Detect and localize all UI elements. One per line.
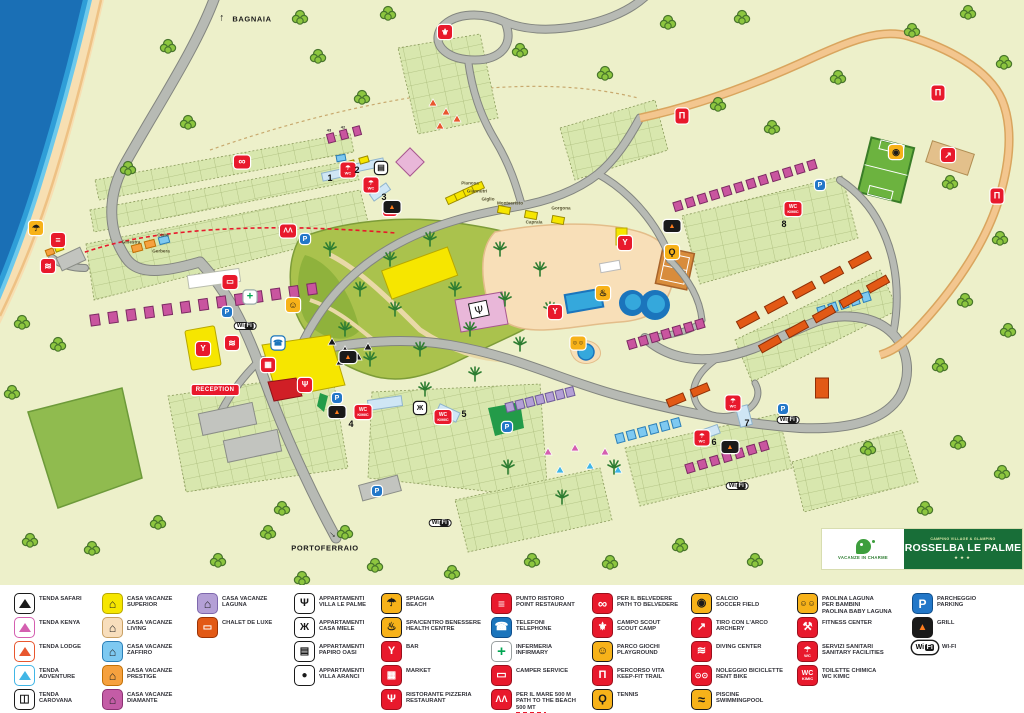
legend-label: PARCHEGGIOPARKING — [937, 593, 976, 609]
legend-item-wifi: WiFiWI-FI — [912, 641, 1012, 665]
legend-column-2: ⌂CASA VACANZESUPERIOR⌂CASA VACANZELIVING… — [102, 593, 197, 713]
legend-label: BAR — [406, 641, 419, 650]
brand-name: VACANZE IN CHARME — [838, 555, 888, 560]
calcio-icon: ◉ — [691, 593, 712, 614]
legend-label: CALCIOSOCCER FIELD — [716, 593, 759, 609]
legend-label: PISCINESWIMMINGPOOL — [716, 689, 763, 705]
legend-label: TENNIS — [617, 689, 638, 698]
percorso-vita-icon: Π — [592, 665, 613, 686]
legend-item-ristorante-pizzeria: ΨRISTORANTE PIZZERIARESTAURANT — [381, 689, 491, 713]
legend-label: NOLEGGIO BICICLETTERENT BIKE — [716, 665, 783, 681]
legend-label: SERVIZI SANITARISANITARY FACILITIES — [822, 641, 884, 657]
camping-resort-map-page: Ψ ∞⚜ΠΠΠ◉↗Ϙ♨YYYY☺☺☺▦Ψ≡☂≋≋☎+▭ΛΛ▤Ж☂WC☂WC☂WC… — [0, 0, 1024, 713]
grill-icon: ▲ — [329, 406, 346, 418]
legend-label: CASA VACANZEDIAMANTE — [127, 689, 172, 705]
tenda-carovana-icon: ◫ — [14, 689, 35, 710]
resort-logo: VACANZE IN CHARME CAMPING VILLAGE & GLAM… — [822, 529, 1022, 569]
per-il-belvedere-icon: ∞ — [592, 593, 613, 614]
legend-item-grill: ▲GRILL — [912, 617, 1012, 641]
legend-label: TENDA KENYA — [39, 617, 80, 626]
legend-item-casa-vacanze-diamante: ⌂CASA VACANZEDIAMANTE — [102, 689, 197, 713]
casa-vacanze-diamante-icon: ⌂ — [102, 689, 123, 710]
legend-item-per-il-mare: ΛΛPER IL MARE 500 MPATH TO THE BEACH500 … — [491, 689, 592, 713]
brand-swirl-icon — [856, 539, 871, 554]
legend-item-per-il-belvedere: ∞PER IL BELVEDEREPATH TO BELVEDERE — [592, 593, 691, 617]
restaurant-icon: Ψ — [298, 378, 312, 392]
beach-path-icon: ΛΛ — [280, 225, 296, 238]
resort-stars: ★★★ — [954, 555, 972, 561]
camper-icon: ▭ — [223, 275, 238, 289]
legend-item-spa-centro-benessere: ♨SPA/CENTRO BENESSEREHEALTH CENTRE — [381, 617, 491, 641]
punto-ristoro-icon: ≡ — [491, 593, 512, 614]
legend-item-appartamenti-villa-aranci: ●APPARTAMENTIVILLA ARANCI — [294, 665, 381, 689]
bar-icon: Y — [548, 305, 562, 319]
miele-icon: Ж — [414, 402, 426, 414]
casa-vacanze-laguna-icon: ⌂ — [197, 593, 218, 614]
legend-label: TENDAADVENTURE — [39, 665, 75, 681]
casa-vacanze-living-icon: ⌂ — [102, 617, 123, 638]
legend-label: FITNESS CENTER — [822, 617, 872, 626]
parking-icon: P — [778, 404, 788, 414]
parking-icon: P — [300, 234, 310, 244]
percorso-icon: Π — [991, 189, 1004, 204]
legend-label: APPARTAMENTIVILLA ARANCI — [319, 665, 364, 681]
wifi-icon: WiFi — [234, 322, 257, 330]
wifi-icon: WiFi — [726, 482, 749, 490]
playground-icon: ☺ — [286, 298, 300, 312]
legend-label: TENDA SAFARI — [39, 593, 82, 602]
legend-column-3: ⌂CASA VACANZELAGUNA▭CHALET DE LUXE — [197, 593, 294, 713]
parco-giochi-icon: ☺ — [592, 641, 613, 662]
appartamenti-villa-le-palme-icon: Ψ — [294, 593, 315, 614]
per-il-mare-icon: ΛΛ — [491, 689, 512, 710]
campo-scout-icon: ⚜ — [592, 617, 613, 638]
parking-icon: P — [372, 486, 382, 496]
legend-item-infermeria: +INFERMERIAINFIRMARY — [491, 641, 592, 665]
parking-icon: P — [815, 180, 825, 190]
legend-column-7: ∞PER IL BELVEDEREPATH TO BELVEDERE⚜CAMPO… — [592, 593, 691, 713]
legend-label: CHALET DE LUXE — [222, 617, 272, 626]
wc-icon: ☂WC — [341, 163, 356, 178]
tiro-con-larco-icon: ↗ — [691, 617, 712, 638]
grill-icon: ▲ — [912, 617, 933, 638]
legend-label: CASA VACANZELIVING — [127, 617, 172, 633]
legend-label: CASA VACANZESUPERIOR — [127, 593, 172, 609]
bar-icon: Y — [618, 236, 632, 250]
legend-item-percorso-vita: ΠPERCORSO VITAKEEP-FIT TRAIL — [592, 665, 691, 689]
legend-column-4: ΨAPPARTAMENTIVILLA LE PALMEЖAPPARTAMENTI… — [294, 593, 381, 713]
casa-vacanze-zaffiro-icon: ⌂ — [102, 641, 123, 662]
wifi-icon: WiFi — [912, 641, 938, 654]
legend-column-6: ≡PUNTO RISTOROPOINT RESTAURANT☎TELEFONIT… — [491, 593, 592, 713]
casa-vacanze-prestige-icon: ⌂ — [102, 665, 123, 686]
servizi-sanitari-icon: ☂WC — [797, 641, 818, 662]
kimic-icon: WCKIMIC — [355, 405, 372, 419]
market-icon: ▦ — [381, 665, 402, 686]
legend-label: CAMPER SERVICE — [516, 665, 568, 674]
parking-icon: P — [222, 307, 232, 317]
resort-name: ROSSELBA LE PALME — [905, 542, 1022, 554]
spa-centro-benessere-icon: ♨ — [381, 617, 402, 638]
legend-item-casa-vacanze-prestige: ⌂CASA VACANZEPRESTIGE — [102, 665, 197, 689]
grill-icon: ▲ — [664, 220, 681, 232]
tenda-safari-icon — [14, 593, 35, 614]
legend-item-tenda-lodge: TENDA LODGE — [14, 641, 102, 665]
toilette-chimica-icon: WCKIMIC — [797, 665, 818, 686]
beach-icon: ☂ — [29, 221, 43, 235]
terrain-illustration: Ψ — [0, 0, 1024, 585]
scout-icon: ⚜ — [438, 25, 452, 39]
kimic-icon: WCKIMIC — [785, 202, 802, 216]
legend-item-diving-center: ≋DIVING CENTER — [691, 641, 797, 665]
legend-label: RISTORANTE PIZZERIARESTAURANT — [406, 689, 472, 705]
legend-label: TOILETTE CHIMICAWC KIMIC — [822, 665, 876, 681]
legend-label: MARKET — [406, 665, 431, 674]
telefono-icon: ☎ — [272, 337, 285, 350]
legend-label: SPIAGGIABEACH — [406, 593, 434, 609]
camper-service-icon: ▭ — [491, 665, 512, 686]
legend-label: CASA VACANZELAGUNA — [222, 593, 267, 609]
infermeria-icon: + — [244, 291, 257, 304]
chalet-de-luxe-icon: ▭ — [197, 617, 218, 638]
legend-item-casa-vacanze-living: ⌂CASA VACANZELIVING — [102, 617, 197, 641]
legend-item-spiaggia: ☂SPIAGGIABEACH — [381, 593, 491, 617]
legend-item-punto-ristoro: ≡PUNTO RISTOROPOINT RESTAURANT — [491, 593, 592, 617]
legend-label: PUNTO RISTOROPOINT RESTAURANT — [516, 593, 575, 609]
legend-item-market: ▦MARKET — [381, 665, 491, 689]
casa-vacanze-superior-icon: ⌂ — [102, 593, 123, 614]
legend-item-chalet-de-luxe: ▭CHALET DE LUXE — [197, 617, 294, 641]
wc-icon: ☂WC — [364, 178, 379, 193]
bar-icon: Y — [381, 641, 402, 662]
legend-label: PER IL BELVEDEREPATH TO BELVEDERE — [617, 593, 678, 609]
punto-ristoro-icon: ≡ — [51, 233, 65, 247]
legend-label: DIVING CENTER — [716, 641, 761, 650]
legend-item-piscine: ≈PISCINESWIMMINGPOOL — [691, 689, 797, 713]
legend-label: INFERMERIAINFIRMARY — [516, 641, 552, 657]
legend-label: TENDA LODGE — [39, 641, 81, 650]
legend: TENDA SAFARITENDA KENYATENDA LODGETENDAA… — [0, 585, 1024, 713]
legend-label: TELEFONITELEPHONE — [516, 617, 551, 633]
legend-item-tenda-adventure: TENDAADVENTURE — [14, 665, 102, 689]
spiaggia-icon: ☂ — [381, 593, 402, 614]
legend-label: APPARTAMENTIPAPIRO OASI — [319, 641, 364, 657]
paolina-laguna-icon: ☺☺ — [797, 593, 818, 614]
wifi-icon: WiFi — [429, 519, 452, 527]
legend-item-parco-giochi: ☺PARCO GIOCHIPLAYGROUND — [592, 641, 691, 665]
kimic-icon: WCKIMIC — [435, 410, 452, 424]
appartamenti-papiro-oasi-icon: ▤ — [294, 641, 315, 662]
calcio-icon: ◉ — [889, 145, 903, 159]
legend-item-bar: YBAR — [381, 641, 491, 665]
legend-item-casa-vacanze-superior: ⌂CASA VACANZESUPERIOR — [102, 593, 197, 617]
noleggio-biciclette-icon: ⊙⊙ — [691, 665, 712, 686]
legend-label: PARCO GIOCHIPLAYGROUND — [617, 641, 660, 657]
appartamenti-casa-miele-icon: Ж — [294, 617, 315, 638]
telefoni-icon: ☎ — [491, 617, 512, 638]
legend-label: CASA VACANZEZAFFIRO — [127, 641, 172, 657]
legend-label: GRILL — [937, 617, 954, 626]
paolina-icon: ☺☺ — [571, 337, 586, 350]
legend-label: CASA VACANZEPRESTIGE — [127, 665, 172, 681]
parcheggio-icon: P — [912, 593, 933, 614]
legend-label: APPARTAMENTIVILLA LE PALME — [319, 593, 366, 609]
legend-item-parcheggio: PPARCHEGGIOPARKING — [912, 593, 1012, 617]
diving-center-icon: ≋ — [691, 641, 712, 662]
legend-label: PER IL MARE 500 MPATH TO THE BEACH500 MT — [516, 689, 576, 713]
legend-item-fitness-center: ⚒FITNESS CENTER — [797, 617, 912, 641]
legend-label: TENDACAROVANA — [39, 689, 72, 705]
legend-label: TIRO CON L'ARCOARCHERY — [716, 617, 768, 633]
infermeria-icon: + — [491, 641, 512, 662]
legend-column-8: ◉CALCIOSOCCER FIELD↗TIRO CON L'ARCOARCHE… — [691, 593, 797, 713]
grill-icon: ▲ — [340, 351, 357, 363]
legend-item-camper-service: ▭CAMPER SERVICE — [491, 665, 592, 689]
diving-icon: ≋ — [41, 259, 55, 273]
legend-item-appartamenti-papiro-oasi: ▤APPARTAMENTIPAPIRO OASI — [294, 641, 381, 665]
legend-column-9: ☺☺PAOLINA LAGUNAPER BAMBINIPAOLINA BABY … — [797, 593, 912, 713]
tenda-kenya-icon — [14, 617, 35, 638]
legend-label: APPARTAMENTICASA MIELE — [319, 617, 364, 633]
legend-item-tenda-kenya: TENDA KENYA — [14, 617, 102, 641]
legend-item-toilette-chimica: WCKIMICTOILETTE CHIMICAWC KIMIC — [797, 665, 912, 689]
legend-column-10: PPARCHEGGIOPARKING▲GRILLWiFiWI-FI — [912, 593, 1012, 713]
legend-column-5: ☂SPIAGGIABEACH♨SPA/CENTRO BENESSEREHEALT… — [381, 593, 491, 713]
belvedere-icon: ∞ — [234, 156, 250, 169]
legend-item-servizi-sanitari: ☂WCSERVIZI SANITARISANITARY FACILITIES — [797, 641, 912, 665]
appartamenti-villa-aranci-icon: ● — [294, 665, 315, 686]
legend-item-tenda-safari: TENDA SAFARI — [14, 593, 102, 617]
legend-item-tenda-carovana: ◫TENDACAROVANA — [14, 689, 102, 713]
map-area: Ψ ∞⚜ΠΠΠ◉↗Ϙ♨YYYY☺☺☺▦Ψ≡☂≋≋☎+▭ΛΛ▤Ж☂WC☂WC☂WC… — [0, 0, 1024, 585]
wc-icon: ☂WC — [726, 396, 741, 411]
grill-icon: ▲ — [384, 201, 401, 213]
wc-icon: ☂WC — [695, 431, 710, 446]
ristorante-pizzeria-icon: Ψ — [381, 689, 402, 710]
resort-tagline: CAMPING VILLAGE & GLAMPING — [930, 537, 995, 541]
legend-item-paolina-laguna: ☺☺PAOLINA LAGUNAPER BAMBINIPAOLINA BABY … — [797, 593, 912, 617]
legend-item-campo-scout: ⚜CAMPO SCOUTSCOUT CAMP — [592, 617, 691, 641]
diving-icon: ≋ — [225, 336, 239, 350]
archery-icon: ↗ — [941, 148, 955, 162]
legend-item-appartamenti-casa-miele: ЖAPPARTAMENTICASA MIELE — [294, 617, 381, 641]
market-icon: ▦ — [261, 358, 275, 372]
legend-item-tiro-con-larco: ↗TIRO CON L'ARCOARCHERY — [691, 617, 797, 641]
parking-icon: P — [502, 422, 512, 432]
papiro-icon: ▤ — [375, 162, 387, 174]
percorso-icon: Π — [932, 86, 945, 101]
logo-resort-panel: CAMPING VILLAGE & GLAMPING ROSSELBA LE P… — [904, 529, 1022, 569]
grill-icon: ▲ — [722, 441, 739, 453]
legend-label: CAMPO SCOUTSCOUT CAMP — [617, 617, 660, 633]
logo-brand-panel: VACANZE IN CHARME — [822, 529, 904, 569]
legend-column-1: TENDA SAFARITENDA KENYATENDA LODGETENDAA… — [14, 593, 102, 713]
legend-item-casa-vacanze-zaffiro: ⌂CASA VACANZEZAFFIRO — [102, 641, 197, 665]
percorso-icon: Π — [676, 109, 689, 124]
tenda-lodge-icon — [14, 641, 35, 662]
tennis-icon: Ϙ — [592, 689, 613, 710]
tennis-icon: Ϙ — [665, 245, 679, 259]
legend-item-telefoni: ☎TELEFONITELEPHONE — [491, 617, 592, 641]
bar-icon: Y — [196, 342, 210, 356]
legend-item-noleggio-biciclette: ⊙⊙NOLEGGIO BICICLETTERENT BIKE — [691, 665, 797, 689]
parking-icon: P — [332, 393, 342, 403]
tenda-adventure-icon — [14, 665, 35, 686]
spa-icon: ♨ — [596, 286, 610, 300]
piscine-icon: ≈ — [691, 689, 712, 710]
wifi-icon: WiFi — [777, 416, 800, 424]
legend-label: PERCORSO VITAKEEP-FIT TRAIL — [617, 665, 665, 681]
legend-item-calcio: ◉CALCIOSOCCER FIELD — [691, 593, 797, 617]
fitness-center-icon: ⚒ — [797, 617, 818, 638]
reception-label: RECEPTION — [192, 385, 239, 395]
legend-label: PAOLINA LAGUNAPER BAMBINIPAOLINA BABY LA… — [822, 593, 892, 615]
legend-item-casa-vacanze-laguna: ⌂CASA VACANZELAGUNA — [197, 593, 294, 617]
legend-label: SPA/CENTRO BENESSEREHEALTH CENTRE — [406, 617, 481, 633]
legend-label: WI-FI — [942, 641, 956, 650]
legend-item-appartamenti-villa-le-palme: ΨAPPARTAMENTIVILLA LE PALME — [294, 593, 381, 617]
legend-item-tennis: ϘTENNIS — [592, 689, 691, 713]
